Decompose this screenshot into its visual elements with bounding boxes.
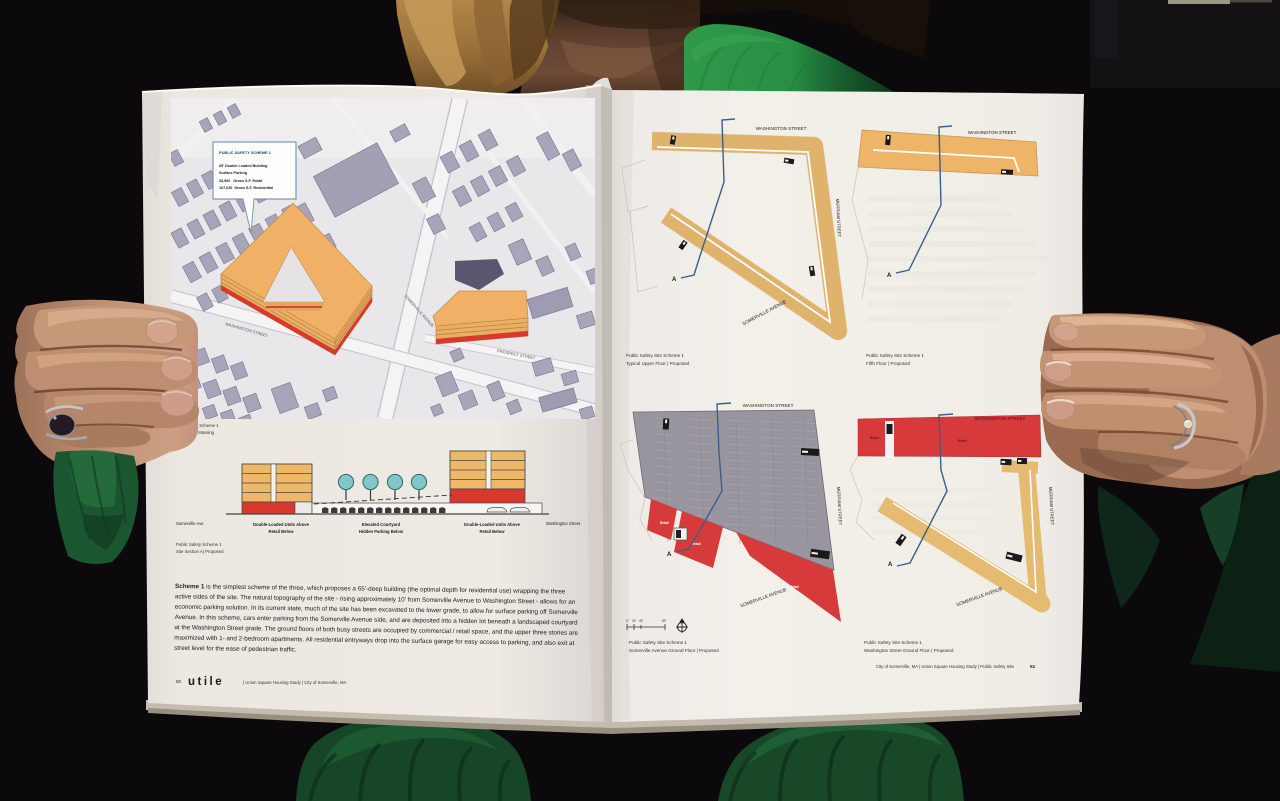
svg-text:WASHINGTON STREET: WASHINGTON STREET: [756, 126, 807, 131]
svg-text:80’: 80’: [662, 619, 667, 623]
svg-text:50: 50: [176, 679, 182, 684]
svg-text:WASHINGTON STREET: WASHINGTON STREET: [975, 416, 1026, 421]
svg-text:Public Safety Site Scheme 1: Public Safety Site Scheme 1: [626, 353, 684, 358]
svg-text:WASHINGTON STREET: WASHINGTON STREET: [968, 130, 1017, 135]
svg-text:utile: utile: [188, 676, 224, 688]
svg-text:40’: 40’: [639, 619, 644, 623]
svg-text:Public Safety Site Scheme 1: Public Safety Site Scheme 1: [629, 640, 687, 645]
svg-text:PUBLIC SAFETY SCHEME 1: PUBLIC SAFETY SCHEME 1: [219, 150, 272, 155]
svg-text:Surface Parking: Surface Parking: [219, 171, 247, 175]
svg-text:33,900 Gross S.F. Retail: 33,900 Gross S.F. Retail: [219, 179, 262, 183]
svg-text:Washington Street Ground Floor: Washington Street Ground Floor | Propose…: [864, 648, 954, 653]
svg-text:A: A: [888, 562, 893, 568]
svg-text:Hidden Parking Below: Hidden Parking Below: [359, 529, 404, 534]
svg-text:Double-Loaded Units Above: Double-Loaded Units Above: [464, 522, 521, 527]
svg-text:WASHINGTON STREET: WASHINGTON STREET: [743, 403, 794, 408]
svg-text:Elevated Courtyard: Elevated Courtyard: [362, 522, 401, 527]
svg-text:Site Section A| Proposed: Site Section A| Proposed: [176, 549, 224, 554]
svg-text:Double-Loaded Units Above: Double-Loaded Units Above: [253, 522, 310, 527]
svg-text:Fifth Floor | Proposed: Fifth Floor | Proposed: [866, 361, 911, 366]
svg-text:107,630 Gross S.F. Residentia: 107,630 Gross S.F. Residential: [219, 186, 273, 190]
svg-text:Retail Below: Retail Below: [480, 529, 506, 534]
svg-text:Public Safety Site Scheme 1: Public Safety Site Scheme 1: [864, 640, 922, 645]
svg-text:Retail: Retail: [790, 585, 799, 589]
svg-text:A: A: [887, 273, 892, 279]
svg-text:0’: 0’: [626, 619, 629, 623]
svg-text:65’ Double Loaded Building: 65’ Double Loaded Building: [219, 164, 267, 168]
svg-text:Retail: Retail: [958, 439, 967, 443]
svg-text:Public Safety Site Scheme 1: Public Safety Site Scheme 1: [866, 353, 924, 358]
svg-text:Somerville Avenue Ground Floor: Somerville Avenue Ground Floor | Propose…: [629, 648, 719, 653]
svg-text:20’: 20’: [632, 619, 637, 623]
svg-text:51: 51: [1030, 664, 1036, 670]
svg-text:Retail Below: Retail Below: [269, 529, 295, 534]
svg-text:Public Safety Scheme 1: Public Safety Scheme 1: [176, 542, 222, 547]
svg-text:Somerville Ave: Somerville Ave: [176, 521, 204, 526]
svg-text:City of Somerville, MA | Uni: City of Somerville, MA | Union Square Ho…: [876, 664, 1015, 669]
svg-text:Retail: Retail: [870, 436, 879, 440]
svg-text:A: A: [672, 277, 677, 283]
svg-text:A: A: [667, 552, 672, 558]
svg-text:Washington Street: Washington Street: [546, 521, 581, 526]
svg-text:| Union Square Housing Study: | Union Square Housing Study | City of S…: [243, 680, 347, 685]
svg-text:Typical Upper Floor | Propos: Typical Upper Floor | Proposed: [626, 361, 690, 366]
svg-text:Retail: Retail: [660, 521, 669, 525]
